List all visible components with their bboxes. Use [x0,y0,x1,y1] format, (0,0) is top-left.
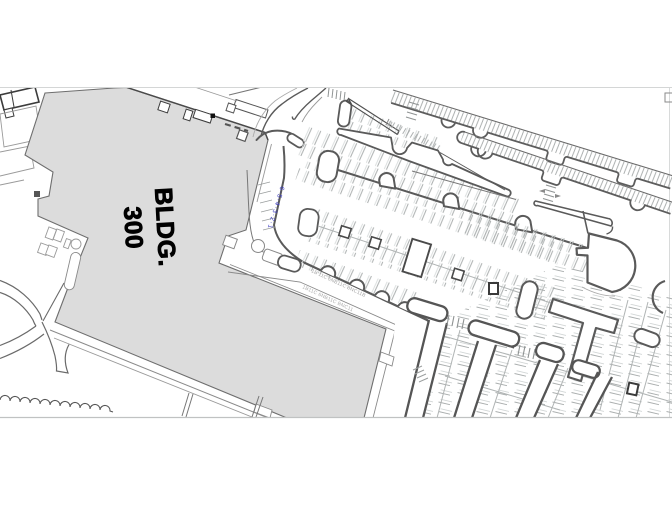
svg-text:300: 300 [118,206,147,250]
svg-text:BLDG.: BLDG. [149,187,180,268]
